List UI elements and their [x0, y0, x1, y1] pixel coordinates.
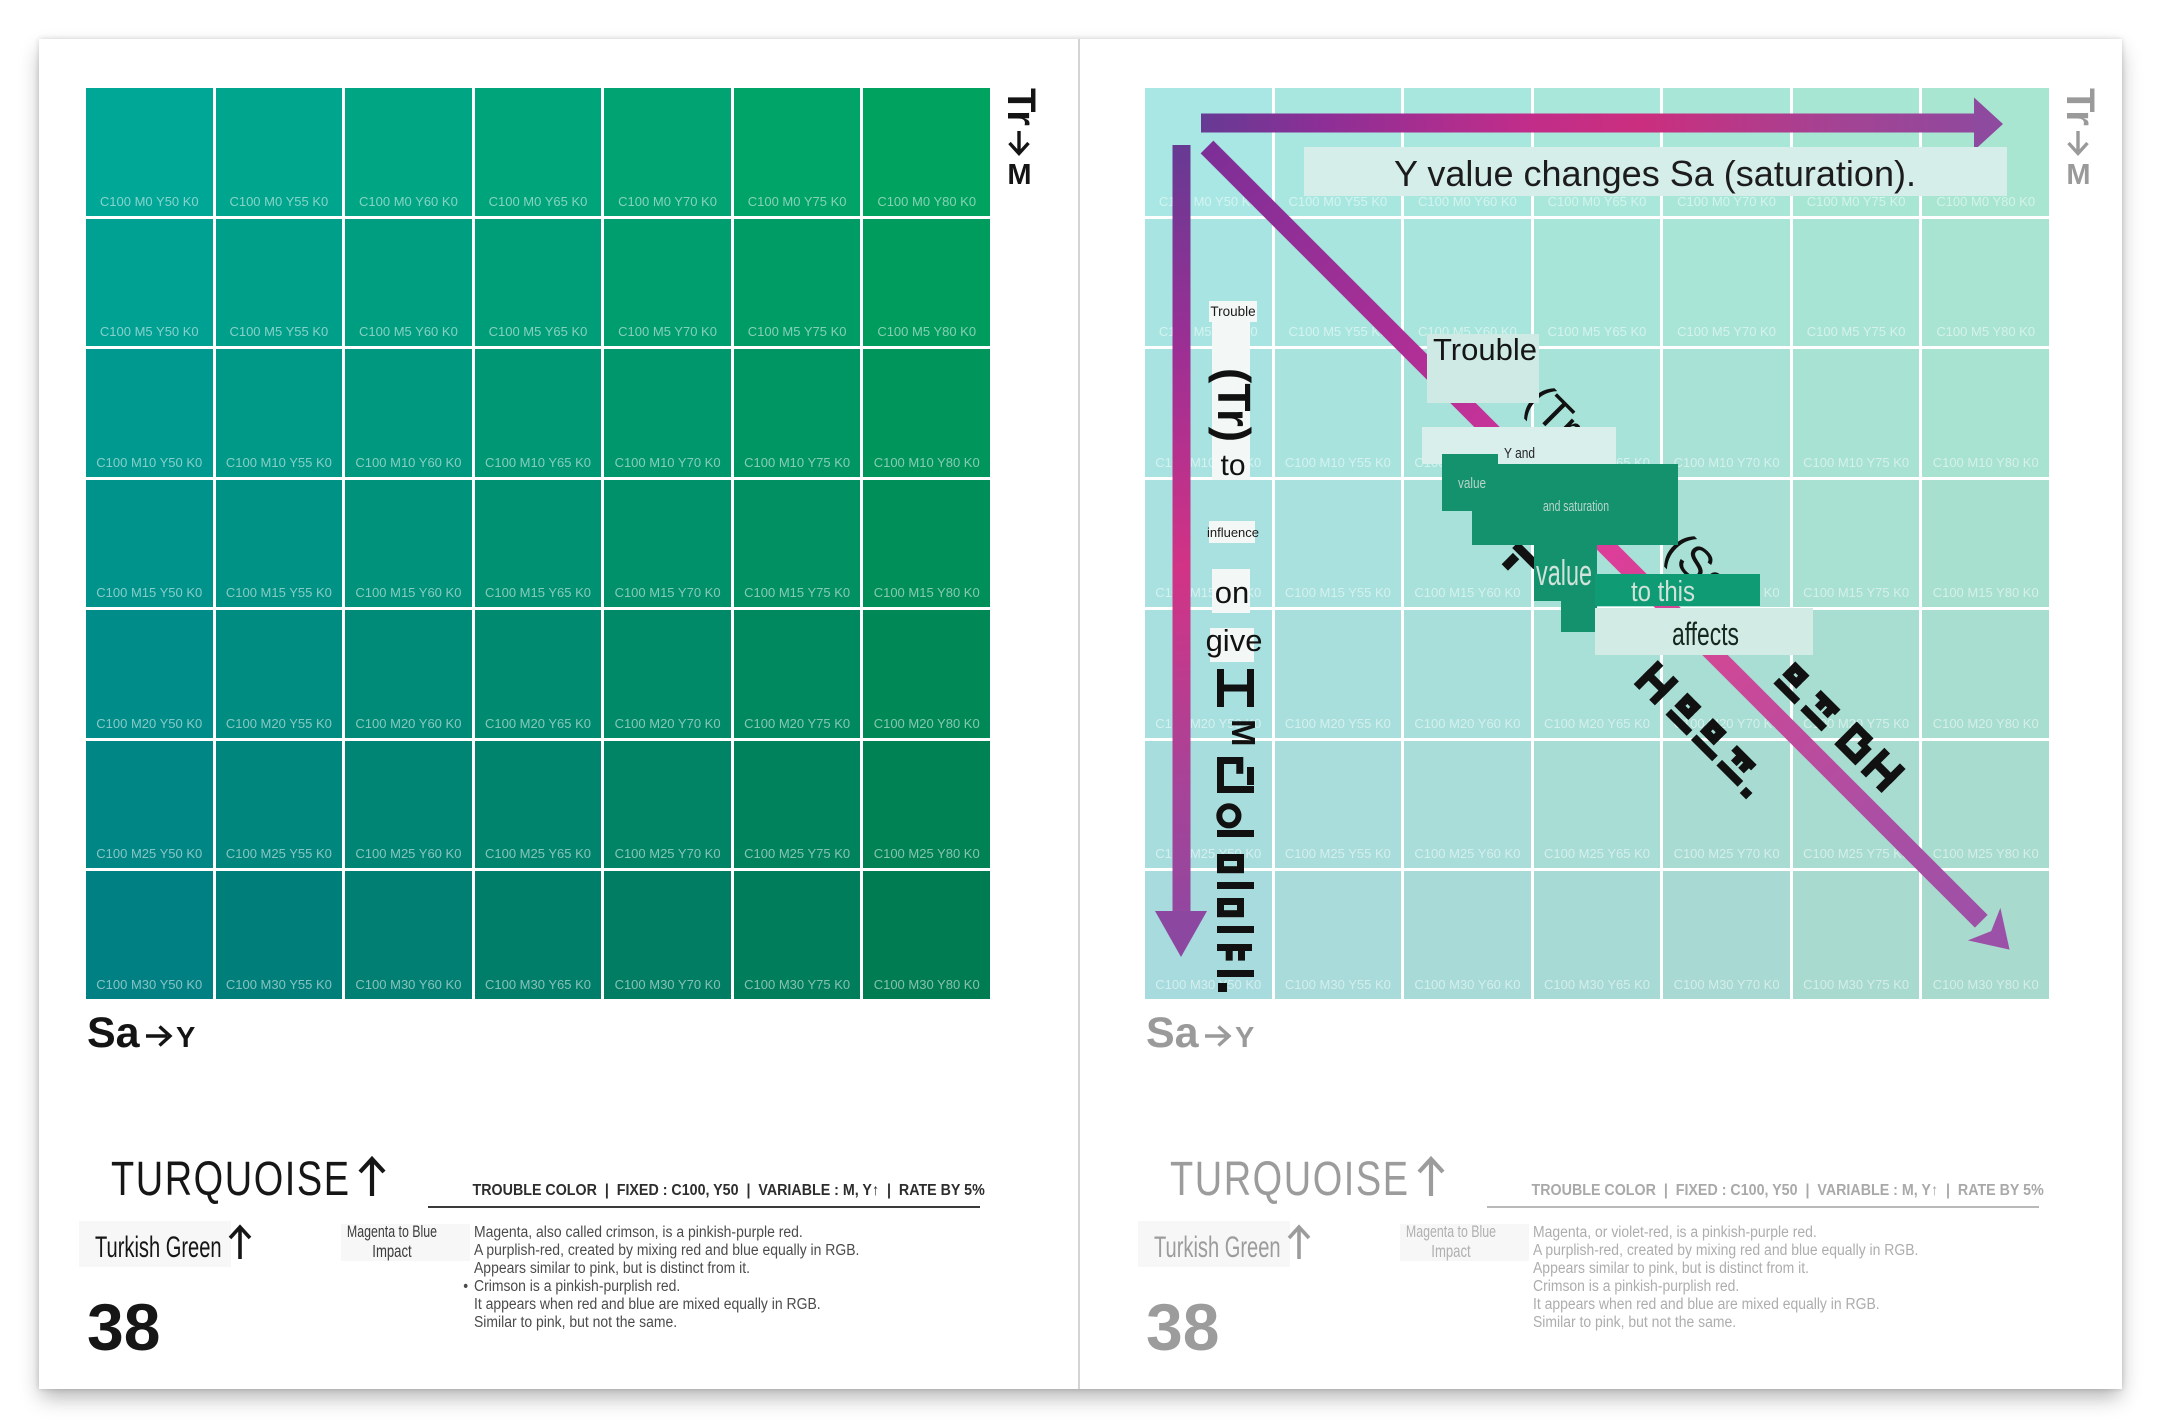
svg-text:on: on [1215, 575, 1249, 610]
svg-text:(Tr): (Tr) [1208, 368, 1260, 442]
svg-text:give: give [1206, 623, 1263, 658]
svg-text:to this: to this [1631, 576, 1695, 608]
svg-text:Sa: Sa [1146, 1009, 1200, 1057]
svg-text:and saturation: and saturation [1543, 498, 1609, 515]
svg-text:affects: affects [1672, 616, 1739, 652]
svg-text:Y: Y [1235, 1022, 1254, 1054]
svg-text:Y value changes Sa (saturation: Y value changes Sa (saturation). [1394, 153, 1916, 194]
svg-text:value: value [1536, 552, 1592, 593]
svg-text:value: value [1458, 475, 1486, 492]
svg-text:M: M [2066, 159, 2090, 191]
svg-text:M: M [1225, 719, 1262, 747]
svg-text:M: M [1007, 159, 1031, 191]
svg-text:to: to [1220, 449, 1245, 482]
svg-text:influence: influence [1207, 525, 1259, 540]
svg-text:Tr: Tr [2058, 88, 2102, 126]
svg-text:Trouble: Trouble [1210, 304, 1255, 319]
svg-text:Tr: Tr [999, 88, 1043, 126]
svg-text:Sa: Sa [87, 1009, 141, 1057]
svg-text:Y: Y [176, 1022, 195, 1054]
svg-text:Trouble: Trouble [1433, 332, 1537, 367]
svg-text:Y and: Y and [1504, 445, 1535, 462]
